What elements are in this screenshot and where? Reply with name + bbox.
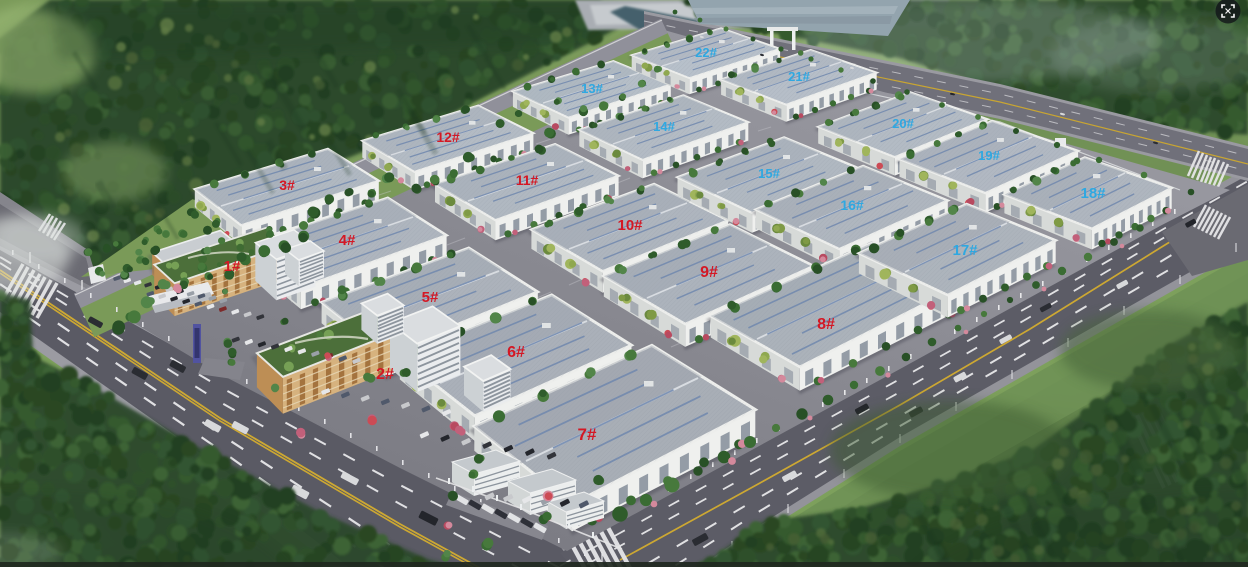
svg-text:17#: 17# [952, 242, 978, 259]
svg-text:19#: 19# [978, 148, 1000, 163]
svg-text:7#: 7# [578, 425, 597, 444]
svg-text:12#: 12# [436, 129, 460, 145]
svg-text:3#: 3# [279, 177, 295, 193]
svg-text:21#: 21# [788, 69, 810, 84]
svg-text:9#: 9# [700, 264, 718, 281]
svg-text:16#: 16# [840, 197, 864, 213]
svg-text:2#: 2# [376, 366, 394, 383]
svg-text:4#: 4# [339, 232, 356, 249]
svg-text:20#: 20# [892, 116, 914, 131]
svg-text:18#: 18# [1080, 185, 1106, 202]
svg-text:5#: 5# [422, 289, 439, 306]
svg-text:22#: 22# [695, 45, 717, 60]
svg-text:8#: 8# [817, 316, 835, 333]
svg-text:6#: 6# [507, 344, 525, 361]
svg-text:10#: 10# [617, 217, 643, 234]
svg-text:13#: 13# [581, 81, 603, 96]
svg-text:11#: 11# [516, 172, 539, 188]
svg-text:1#: 1# [224, 258, 241, 275]
svg-text:15#: 15# [758, 166, 780, 181]
svg-text:14#: 14# [653, 119, 675, 134]
